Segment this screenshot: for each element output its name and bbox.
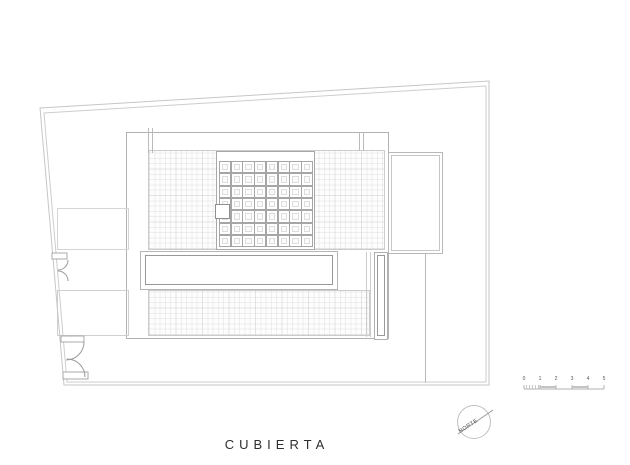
coffer-highlight-square	[215, 204, 230, 219]
gate-leaf-arc	[58, 271, 68, 281]
gate-jamb	[61, 336, 84, 342]
scale-number: 4	[583, 376, 593, 382]
plan-title: CUBIERTA	[216, 437, 338, 452]
scale-number: 3	[567, 376, 577, 382]
scale-number: 5	[599, 376, 609, 382]
scale-bar-segment	[572, 386, 588, 388]
gate-leaf-arc	[66, 342, 84, 360]
gate-leaf-arc	[58, 260, 68, 270]
site-boundary-inner	[44, 86, 486, 382]
scale-number: 0	[519, 376, 529, 382]
scale-bar-segment	[540, 386, 556, 388]
scale-number: 2	[551, 376, 561, 382]
linework-overlay: NORTE	[0, 0, 630, 465]
scale-subdivision-stripes	[526, 385, 541, 389]
roof-plan-drawing: NORTE 0 1 2 3 4 5 CUBIERTA	[0, 0, 630, 465]
scale-number: 1	[535, 376, 545, 382]
gate-jamb	[52, 253, 67, 259]
site-boundary-outer	[40, 81, 489, 385]
north-label: NORTE	[458, 418, 479, 435]
